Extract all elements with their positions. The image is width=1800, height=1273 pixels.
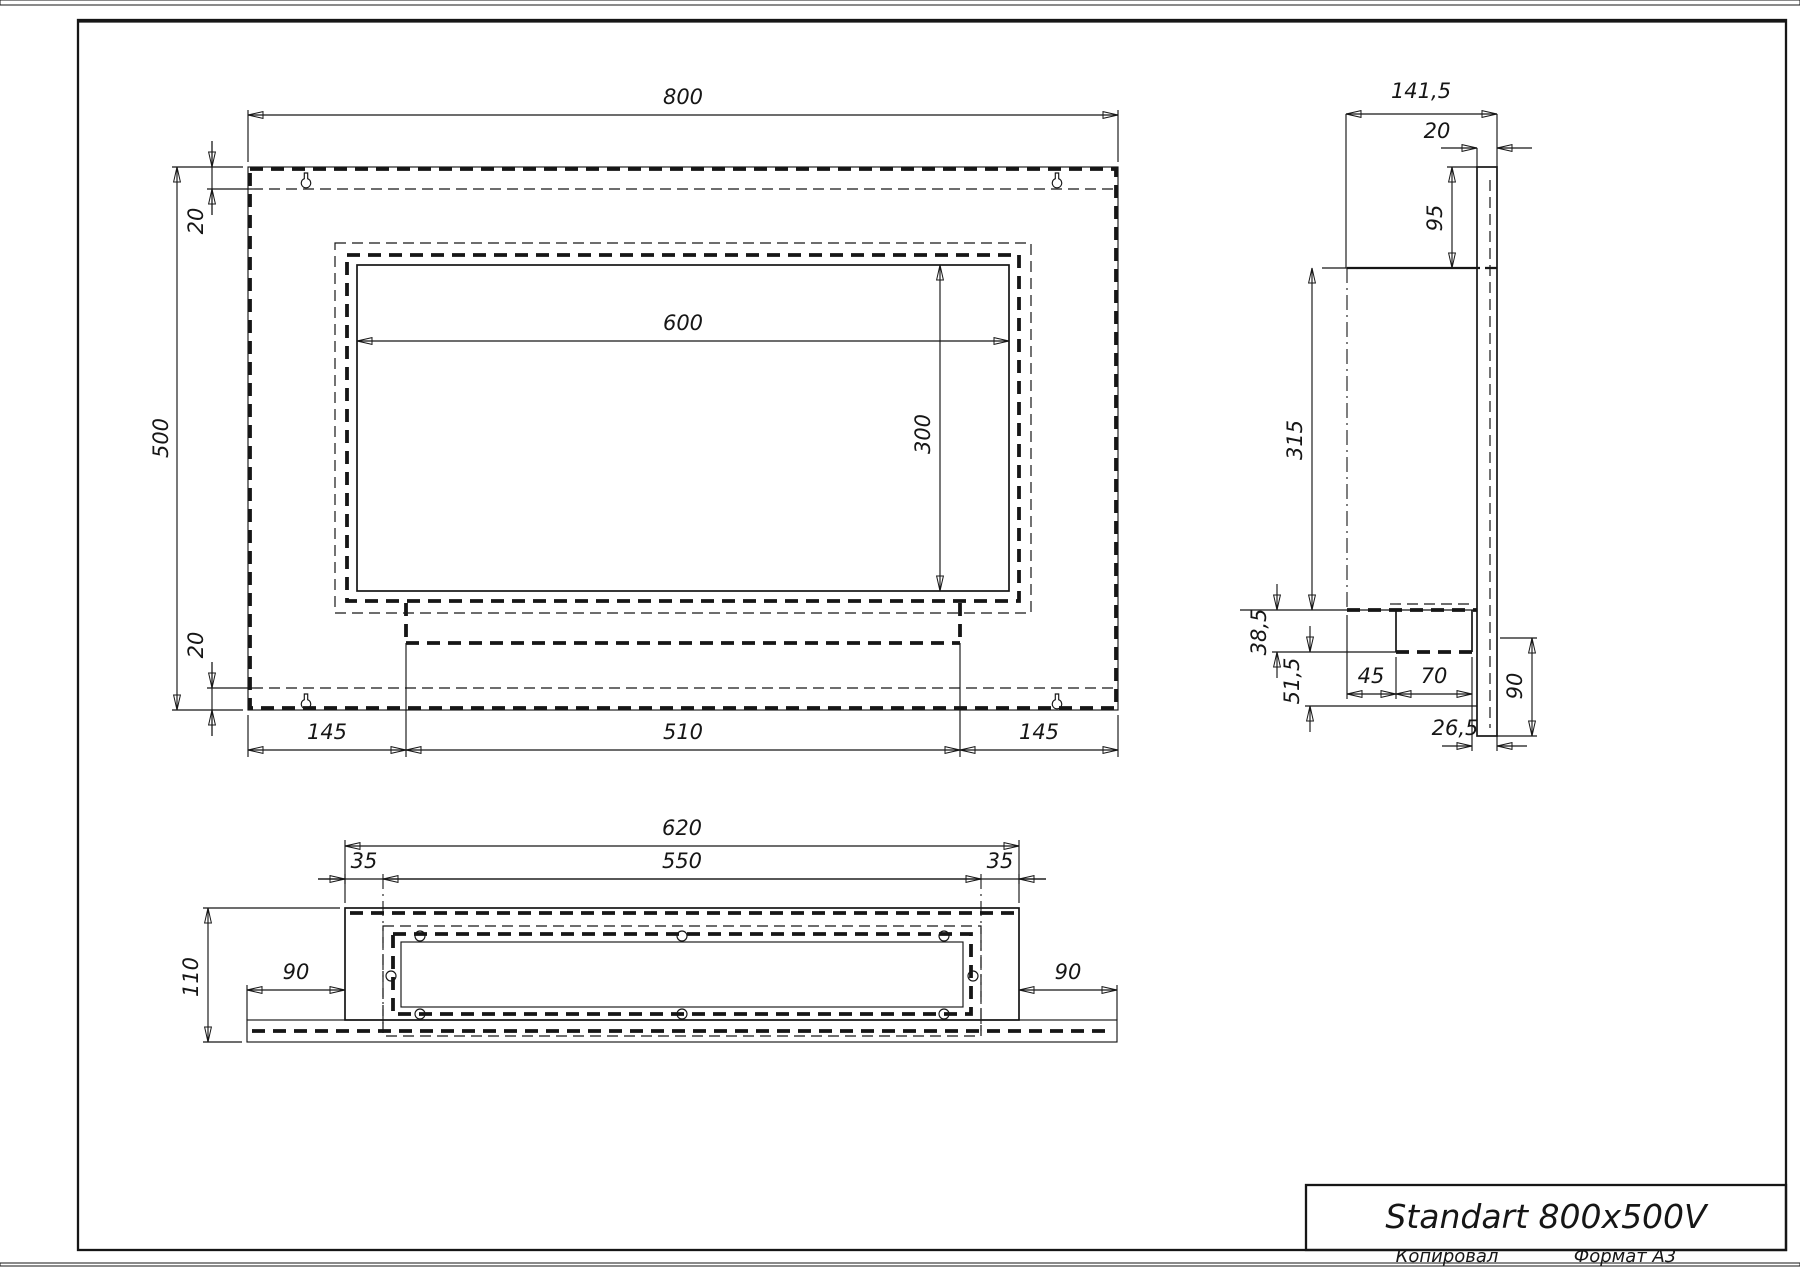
- bottom-view: 620 35 550 35 110 90 90: [179, 816, 1117, 1042]
- dim-opening-height: 300: [911, 414, 935, 454]
- dim-side-tray-height: 38,5: [1247, 609, 1271, 656]
- technical-drawing: 600 300 800 500 20 20 145 510 145: [0, 0, 1800, 1273]
- dim-bottom-depth: 110: [179, 957, 203, 997]
- dim-bottom-margin-left: 90: [283, 960, 310, 984]
- dim-side-plate-drop: 90: [1503, 673, 1527, 700]
- dim-bottom-inset-left: 35: [351, 849, 378, 873]
- dim-opening-width: 600: [663, 311, 703, 335]
- dim-bottom-inner-width: 550: [662, 849, 702, 873]
- dim-bottom-margin-right: 90: [1055, 960, 1082, 984]
- front-view: 600 300 800 500 20 20 145 510 145: [149, 85, 1118, 757]
- dim-front-burner-width: 510: [663, 720, 703, 744]
- format-label: Формат А3: [1574, 1246, 1677, 1267]
- dim-bottom-outer-width: 620: [662, 816, 702, 840]
- dim-side-top-drop: 95: [1423, 205, 1447, 232]
- dim-front-width: 800: [663, 85, 703, 109]
- top-bar: [0, 0, 1800, 5]
- dim-side-body-height: 315: [1283, 420, 1307, 460]
- dim-bottom-inset-right: 35: [987, 849, 1014, 873]
- dim-side-tray-offset: 45: [1358, 664, 1385, 688]
- drawing-sheet: 600 300 800 500 20 20 145 510 145: [0, 0, 1800, 1273]
- dim-side-lower-gap: 51,5: [1280, 658, 1304, 705]
- dim-front-height: 500: [149, 418, 173, 458]
- title-block: Standart 800x500V Копировал Формат А3: [1306, 1185, 1786, 1267]
- dim-side-tray-width: 70: [1421, 664, 1448, 688]
- copied-label: Копировал: [1396, 1246, 1499, 1267]
- dim-front-margin-left: 145: [307, 720, 347, 744]
- dim-front-inset-top: 20: [184, 208, 208, 235]
- dim-front-margin-right: 145: [1019, 720, 1059, 744]
- dim-side-back-gap: 26,5: [1432, 716, 1479, 740]
- page-frame: [0, 0, 1800, 1266]
- side-view: 141,5 20 95 315 38,5 51,5 45 70 26,5: [1240, 79, 1537, 751]
- dim-side-depth: 141,5: [1391, 79, 1451, 103]
- dim-side-plate: 20: [1424, 119, 1451, 143]
- mounting-holes: [386, 931, 978, 1019]
- drawing-title: Standart 800x500V: [1385, 1197, 1709, 1236]
- bottom-bar: [0, 1263, 1800, 1266]
- dim-front-inset-bottom: 20: [184, 632, 208, 659]
